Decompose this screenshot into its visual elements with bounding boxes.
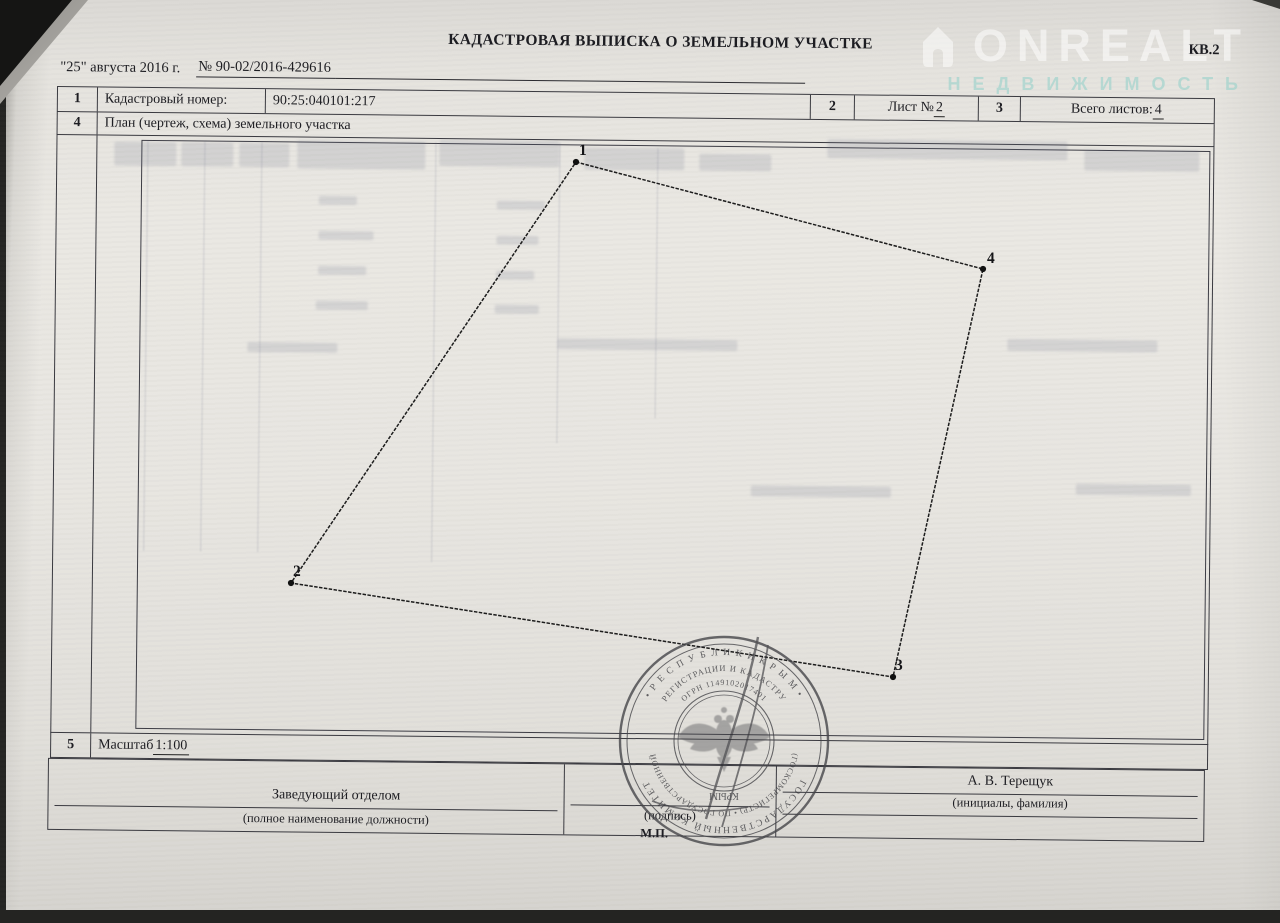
- name-caption: (инициалы, фамилия): [777, 794, 1204, 813]
- bleed-through-mark: [751, 485, 891, 497]
- position-caption: (полное наименование должности): [48, 809, 563, 829]
- date-and-number-line: "25" августа 2016 г. № 90-02/2016-429616: [60, 57, 805, 84]
- bleed-through-mark: [495, 305, 539, 314]
- position-value: Заведующий отделом: [49, 785, 564, 806]
- sheet-label: Лист №: [888, 100, 934, 116]
- signature-line: [782, 814, 1197, 819]
- bleed-through-mark: [584, 147, 684, 170]
- bleed-through-mark: [699, 154, 771, 172]
- row-number-cell: 1: [58, 87, 98, 111]
- row-number-cell: 2: [811, 95, 855, 119]
- bleed-through-mark: [114, 142, 176, 167]
- bleed-through-mark: [827, 139, 1067, 161]
- bleed-through-mark: [557, 338, 737, 351]
- scale-value: 1:100: [153, 738, 189, 755]
- bleed-through-mark: [1076, 484, 1191, 496]
- bleed-through-mark: [247, 342, 337, 353]
- underline-filler: [335, 78, 805, 84]
- row-number-cell: 5: [51, 733, 91, 757]
- bleed-through-mark: [318, 266, 366, 276]
- document-number: № 90-02/2016-429616: [196, 58, 335, 78]
- bleed-through-mark: [318, 231, 373, 241]
- bleed-through-mark: [439, 140, 559, 167]
- sheet-value: 2: [934, 100, 945, 117]
- row-number-cell: 4: [58, 112, 98, 134]
- official-round-stamp: • Р Е С П У Б Л И К И К Р Ы М • ГОСУДАРС…: [608, 625, 840, 857]
- sheet-number-cell: Лист № 2: [855, 95, 979, 120]
- cadastral-number-label: Кадастровый номер:: [98, 87, 266, 113]
- official-name: А. В. Терещук: [777, 772, 1204, 792]
- bleed-through-mark: [1084, 150, 1199, 172]
- empty-number-column: [51, 135, 97, 732]
- name-column: А. В. Терещук (инициалы, фамилия): [776, 767, 1204, 841]
- bleed-through-mark: [1007, 339, 1157, 353]
- position-column: Заведующий отделом (полное наименование …: [48, 759, 564, 834]
- bleed-through-mark: [496, 236, 538, 245]
- scale-label: Масштаб: [98, 737, 153, 754]
- row-number-cell: 3: [979, 97, 1021, 121]
- form-code-label: КВ.2: [1188, 42, 1219, 59]
- cadastral-extract-scan: КАДАСТРОВАЯ ВЫПИСКА О ЗЕМЕЛЬНОМ УЧАСТКЕ …: [0, 0, 1280, 910]
- bleed-through-mark: [319, 196, 357, 205]
- issue-date: "25" августа 2016 г.: [60, 59, 180, 77]
- total-sheets-value: 4: [1153, 102, 1164, 119]
- bleed-through-mark: [316, 301, 368, 311]
- total-sheets-label: Всего листов:: [1071, 102, 1153, 119]
- total-sheets-cell: Всего листов: 4: [1021, 97, 1214, 123]
- bleed-through-mark: [297, 140, 425, 169]
- page-title: КАДАСТРОВАЯ ВЫПИСКА О ЗЕМЕЛЬНОМ УЧАСТКЕ: [330, 30, 990, 55]
- bleed-through-mark: [239, 143, 289, 168]
- bleed-through-mark: [497, 201, 545, 211]
- bleed-through-mark: [181, 142, 233, 167]
- bleed-through-mark: [496, 271, 534, 280]
